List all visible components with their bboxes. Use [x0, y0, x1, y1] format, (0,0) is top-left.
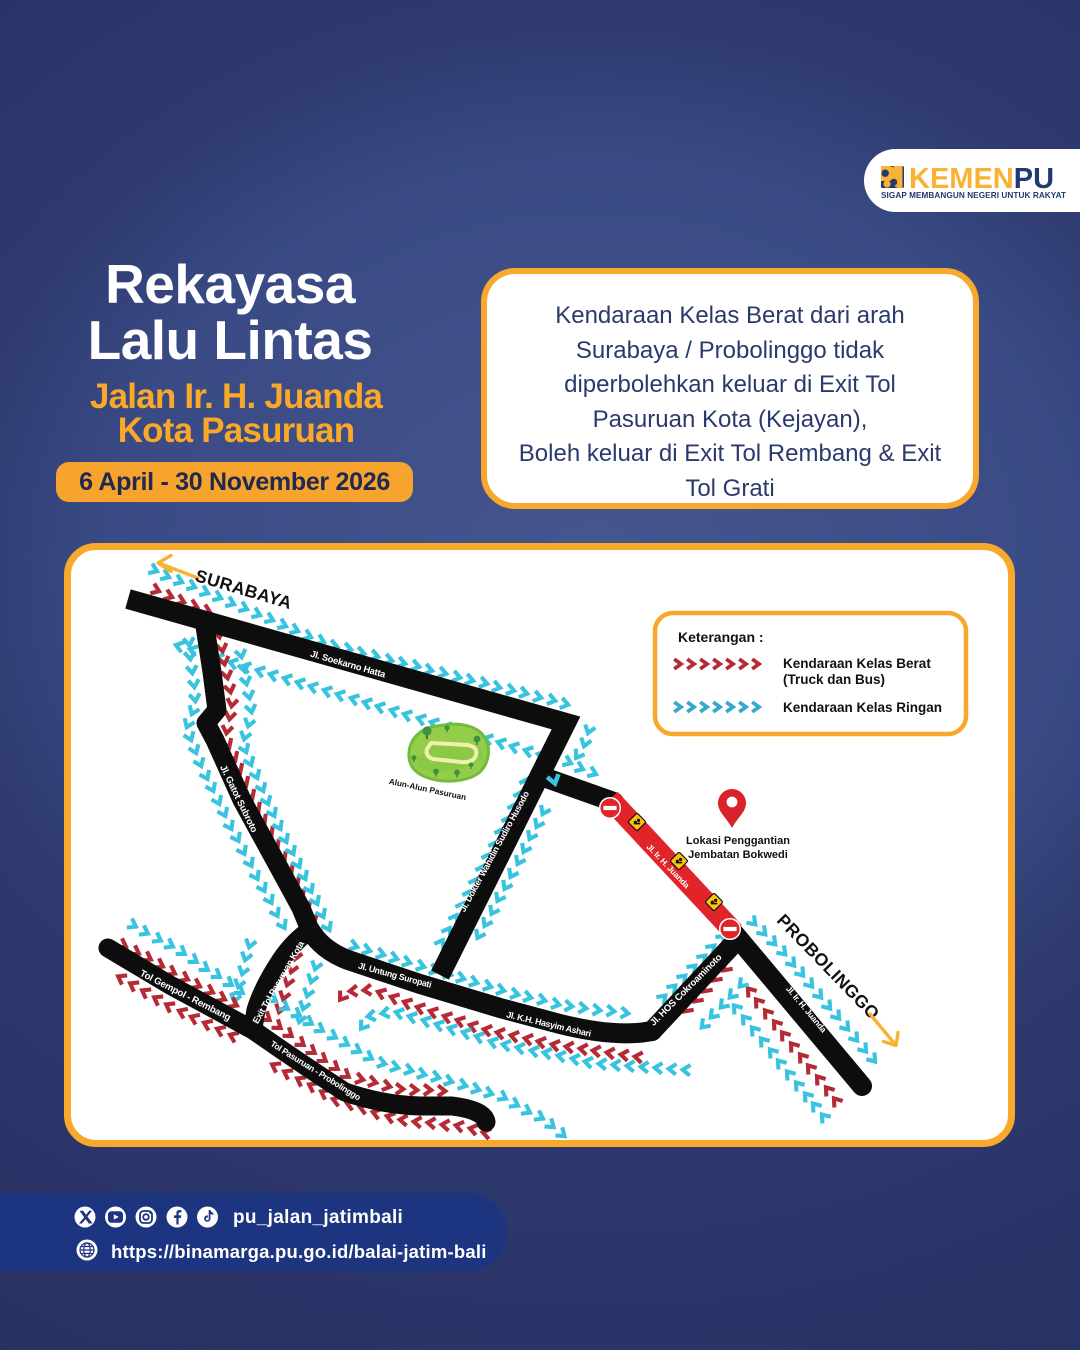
svg-text:(Truck dan Bus): (Truck dan Bus)	[783, 672, 885, 687]
svg-text:Lokasi Penggantian: Lokasi Penggantian	[686, 835, 790, 847]
svg-text:Kendaraan Kelas Berat: Kendaraan Kelas Berat	[783, 656, 931, 671]
svg-text:Jembatan Bokwedi: Jembatan Bokwedi	[688, 849, 788, 861]
svg-text:Jl. Dokter Wahidin Sudiro Huso: Jl. Dokter Wahidin Sudiro Husodo	[458, 789, 532, 914]
svg-text:Keterangan :: Keterangan :	[678, 629, 764, 645]
svg-text:Kendaraan Kelas Ringan: Kendaraan Kelas Ringan	[783, 700, 942, 715]
